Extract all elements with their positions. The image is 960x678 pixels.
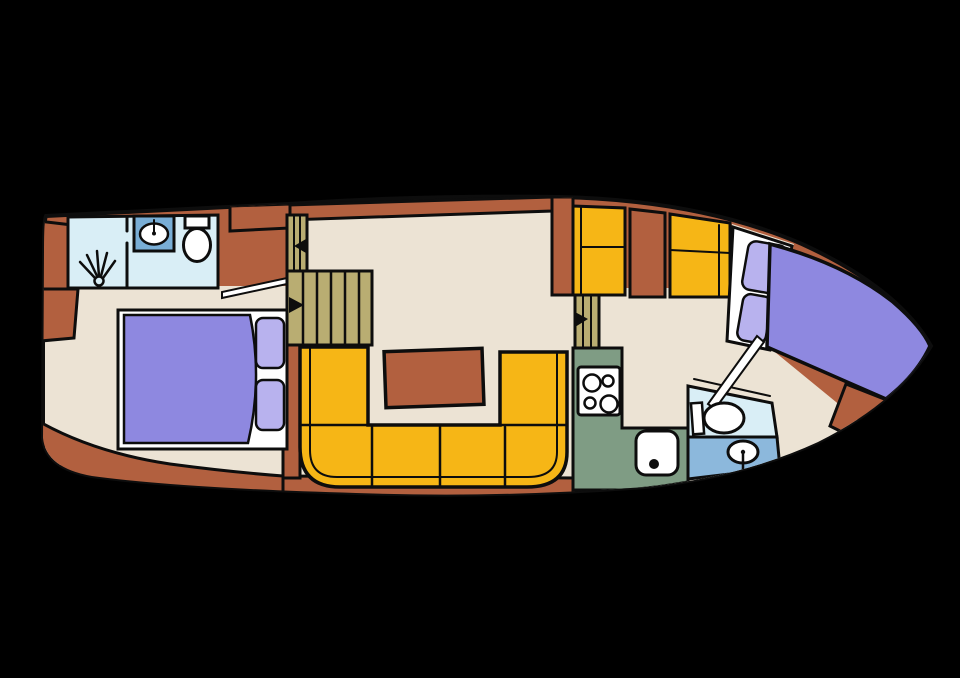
aft-toilet-bowl <box>184 229 211 262</box>
stern-locker-lower <box>30 289 78 342</box>
floor-plan-stage <box>0 0 960 678</box>
boat-floor-plan <box>0 0 960 678</box>
aft-toilet-tank <box>185 216 209 228</box>
wardrobe-cabinet <box>230 204 290 231</box>
stern-locker-upper <box>34 221 72 289</box>
aft-bed-pillow-1 <box>256 318 284 368</box>
galley-sink <box>636 431 678 475</box>
galley-cabinet-mid <box>630 209 665 297</box>
salon-bulkhead <box>552 197 573 295</box>
fwd-toilet-tank <box>691 403 704 435</box>
stove-burner-2 <box>603 376 614 387</box>
fwd-toilet-bowl <box>704 403 744 433</box>
stove-burner-3 <box>585 398 596 409</box>
salon-table <box>384 348 484 407</box>
stove-burner-4 <box>601 396 618 413</box>
fwd-basin-dot <box>741 450 745 454</box>
galley-cabinet-b <box>670 214 730 297</box>
aft-bed-mattress <box>124 315 256 443</box>
galley-sink-drain <box>649 459 659 469</box>
stove-burner-1 <box>584 375 601 392</box>
vanity-faucet-dot <box>152 232 156 236</box>
aft-bed-pillow-2 <box>256 380 284 430</box>
